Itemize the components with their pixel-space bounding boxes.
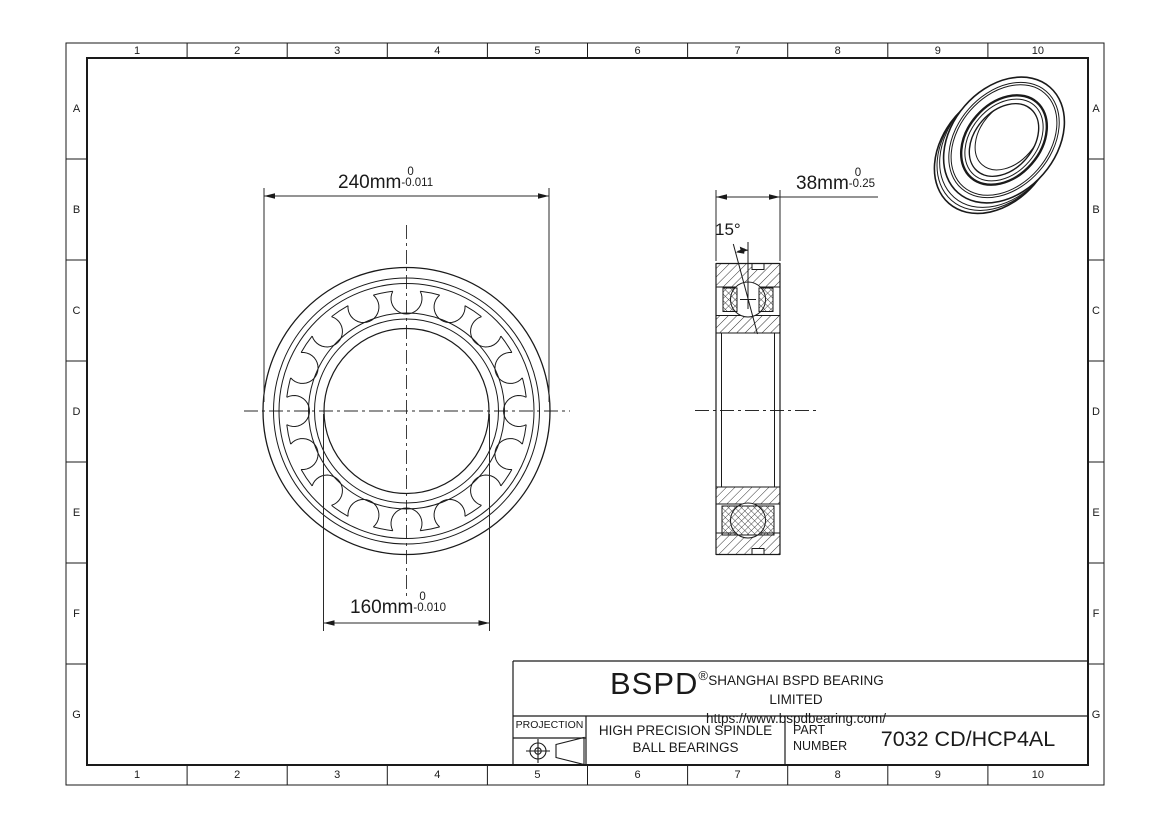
grid-row-label: D xyxy=(66,361,87,462)
dimension-tolerance: 0 -0.25 xyxy=(849,168,875,189)
grid-col-label: 2 xyxy=(187,765,287,785)
grid-row-label: G xyxy=(1088,664,1104,765)
product-description: HIGH PRECISION SPINDLE BALL BEARINGS xyxy=(586,722,785,756)
grid-col-label: 1 xyxy=(87,43,187,58)
grid-row-label: E xyxy=(66,462,87,563)
grid-row-label: C xyxy=(1088,260,1104,361)
grid-col-label: 7 xyxy=(688,765,788,785)
dimension-width: 38mm 0 -0.25 xyxy=(796,174,875,193)
dimension-value: 160mm xyxy=(350,598,413,617)
grid-col-label: 8 xyxy=(788,43,888,58)
grid-row-label: F xyxy=(66,563,87,664)
dimension-outer-diameter: 240mm 0 -0.011 xyxy=(338,173,433,192)
grid-col-label: 3 xyxy=(287,43,387,58)
grid-col-label: 9 xyxy=(888,43,988,58)
grid-col-label: 7 xyxy=(688,43,788,58)
dimension-value: 240mm xyxy=(338,173,401,192)
grid-row-label: A xyxy=(66,58,87,159)
grid-row-label: C xyxy=(66,260,87,361)
grid-col-label: 4 xyxy=(387,43,487,58)
front-view xyxy=(244,188,570,631)
grid-col-label: 6 xyxy=(587,43,687,58)
part-number-value: 7032 CD/HCP4AL xyxy=(858,727,1078,752)
grid-columns-bottom: 12345678910 xyxy=(87,765,1088,785)
grid-col-label: 8 xyxy=(788,765,888,785)
iso-view xyxy=(910,53,1090,237)
grid-col-label: 9 xyxy=(888,765,988,785)
grid-col-label: 1 xyxy=(87,765,187,785)
grid-row-label: B xyxy=(66,159,87,260)
projection-symbol-icon xyxy=(526,738,584,765)
grid-col-label: 5 xyxy=(487,43,587,58)
drawing-sheet: 12345678910 12345678910 ABCDEFG ABCDEFG … xyxy=(0,0,1170,827)
contact-angle-arrows xyxy=(736,247,748,254)
grid-col-label: 3 xyxy=(287,765,387,785)
dimension-tolerance: 0 -0.011 xyxy=(401,167,433,188)
company-info: SHANGHAI BSPD BEARING LIMITED https://ww… xyxy=(688,671,904,728)
grid-row-label: G xyxy=(66,664,87,765)
dimension-value: 38mm xyxy=(796,174,849,193)
grid-col-label: 5 xyxy=(487,765,587,785)
dimension-tolerance: 0 -0.010 xyxy=(413,592,446,613)
grid-col-label: 10 xyxy=(988,765,1088,785)
grid-row-label: D xyxy=(1088,361,1104,462)
grid-row-label: F xyxy=(1088,563,1104,664)
grid-rows-left: ABCDEFG xyxy=(66,58,87,765)
company-name: SHANGHAI BSPD BEARING LIMITED xyxy=(688,671,904,709)
dimension-bore-diameter: 160mm 0 -0.010 xyxy=(350,598,446,617)
grid-col-label: 4 xyxy=(387,765,487,785)
grid-columns-top: 12345678910 xyxy=(87,43,1088,58)
drawing-canvas xyxy=(0,0,1170,827)
front-view-centerlines xyxy=(244,225,570,597)
part-number-label: PART NUMBER xyxy=(793,722,847,754)
grid-row-label: A xyxy=(1088,58,1104,159)
grid-col-label: 6 xyxy=(587,765,687,785)
grid-col-label: 10 xyxy=(988,43,1088,58)
grid-row-label: E xyxy=(1088,462,1104,563)
contact-angle-label: 15° xyxy=(715,220,741,240)
grid-col-label: 2 xyxy=(187,43,287,58)
grid-row-label: B xyxy=(1088,159,1104,260)
side-view xyxy=(695,190,878,555)
grid-rows-right: ABCDEFG xyxy=(1088,58,1104,765)
projection-label: PROJECTION xyxy=(513,719,586,731)
